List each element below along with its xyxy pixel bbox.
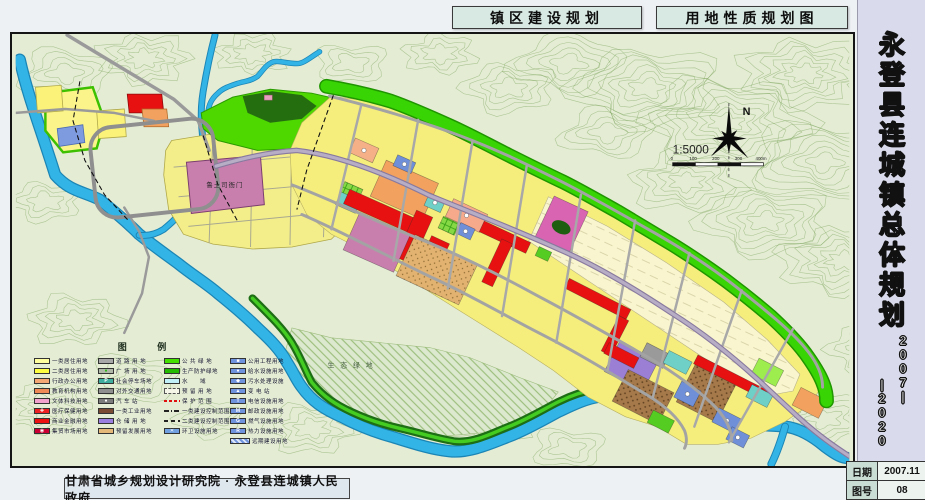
date-label: 日期	[847, 462, 878, 480]
legend-label: 预 留 用 地	[182, 387, 212, 395]
svg-text:300: 300	[735, 156, 743, 161]
legend-item: ●汽 车 站	[98, 396, 152, 406]
sidebar-title-char: 划	[858, 300, 925, 330]
svg-text:400m: 400m	[756, 156, 767, 161]
legend-swatch: ■	[230, 358, 246, 364]
legend-item: 预 留 用 地	[164, 386, 230, 396]
legend-label: 邮政设施用地	[248, 407, 284, 415]
legend-swatch	[34, 398, 50, 404]
date-value: 2007.11	[878, 462, 925, 480]
legend-swatch-icon: ◆	[231, 378, 245, 385]
legend-item: 预留发展用地	[98, 426, 152, 436]
legend-label: 污水处理设施	[248, 377, 284, 385]
legend-swatch: ▲	[230, 388, 246, 394]
sidebar-title-char: 体	[858, 240, 925, 270]
legend-label: 医疗保健用地	[52, 407, 88, 415]
legend-item: 行政办公用地	[34, 376, 88, 386]
legend-swatch-icon: ▲	[231, 388, 245, 395]
legend-swatch	[34, 388, 50, 394]
legend: 图 例 一类居住用地二类居住用地行政办公用地教育机构用地文体科技用地✚医疗保健用…	[32, 340, 294, 462]
legend-label: 电信设施用地	[248, 397, 284, 405]
legend-item: 商业金融用地	[34, 416, 88, 426]
legend-item: 一类建设控制范围	[164, 406, 230, 416]
legend-label: 道 路 用 地	[116, 357, 146, 365]
legend-column: 公 共 绿 地生产防护绿地水 域预 留 用 地保 护 范 围一类建设控制范围二类…	[164, 356, 230, 436]
sidebar-title: 永登县连城镇总体规划	[858, 30, 925, 330]
legend-title: 图 例	[32, 340, 252, 353]
sidebar-title-char: 城	[858, 150, 925, 180]
legend-label: 二类建设控制范围	[182, 417, 230, 425]
info-table: 日期 2007.11 图号 08	[846, 461, 925, 500]
legend-item: 保 护 范 围	[164, 396, 230, 406]
legend-swatch	[164, 388, 180, 394]
legend-label: 社会停车场地	[116, 377, 152, 385]
legend-label: 公用工程用地	[248, 357, 284, 365]
legend-swatch-icon: ◉	[35, 428, 49, 435]
legend-item: 一类工业用地	[98, 406, 152, 416]
sheet-title-left: 镇区建设规划	[452, 6, 642, 29]
legend-label: 生产防护绿地	[182, 367, 218, 375]
legend-swatch	[164, 400, 180, 402]
legend-label: 远期建设用地	[252, 437, 288, 445]
plan-sheet: 镇区建设规划 用地性质规划图	[0, 0, 925, 500]
legend-swatch: ●	[230, 368, 246, 374]
legend-item: R热力设施用地	[230, 426, 288, 436]
legend-item: ●广 场 用 地	[98, 366, 152, 376]
sidebar-title-char: 永	[858, 30, 925, 60]
sheet-value: 08	[878, 481, 925, 499]
legend-label: 保 护 范 围	[182, 397, 212, 405]
sidebar-year-char: 7	[894, 376, 912, 390]
year-end-column: |2020	[873, 378, 891, 448]
legend-item: 二类建设控制范围	[164, 416, 230, 426]
legend-swatch	[34, 368, 50, 374]
sidebar-year-char: 2	[894, 334, 912, 348]
legend-swatch	[34, 418, 50, 424]
eco-green-label: 生 态 绿 地	[328, 360, 375, 369]
legend-item: 道 路 用 地	[98, 356, 152, 366]
legend-swatch	[34, 358, 50, 364]
legend-column: 道 路 用 地●广 场 用 地P社会停车场地对外交通用地●汽 车 站一类工业用地…	[98, 356, 152, 436]
legend-swatch-icon: G	[231, 418, 245, 425]
legend-item: 对外交通用地	[98, 386, 152, 396]
legend-label: 汽 车 站	[116, 397, 138, 405]
legend-label: 广 场 用 地	[116, 367, 146, 375]
legend-label: 一类工业用地	[116, 407, 152, 415]
legend-item: ◆污水处理设施	[230, 376, 288, 386]
legend-item: 远期建设用地	[230, 436, 288, 446]
legend-item: 教育机构用地	[34, 386, 88, 396]
legend-item: ●给水设施用地	[230, 366, 288, 376]
legend-swatch-icon: ●	[99, 398, 113, 405]
legend-label: 教育机构用地	[52, 387, 88, 395]
legend-swatch: R	[230, 428, 246, 434]
legend-swatch	[164, 358, 180, 364]
legend-label: 一类建设控制范围	[182, 407, 230, 415]
sidebar-title-char: 县	[858, 90, 925, 120]
legend-swatch: P	[98, 378, 114, 384]
svg-text:100: 100	[689, 156, 697, 161]
heritage-label: 鲁土司衙门	[206, 180, 243, 189]
legend-swatch	[34, 378, 50, 384]
legend-item: G燃气设施用地	[230, 416, 288, 426]
year-start-column: 2007|	[894, 334, 912, 404]
legend-label: 文体科技用地	[52, 397, 88, 405]
legend-label: 水 域	[182, 377, 206, 385]
legend-label: 公 共 绿 地	[182, 357, 212, 365]
map-frame: 鲁土司衙门 生 态 绿 地 N 1:5000 0 100 200 300 400…	[10, 32, 855, 468]
legend-swatch	[98, 408, 114, 414]
legend-item: T电信设施用地	[230, 396, 288, 406]
legend-swatch: ✚	[34, 408, 50, 414]
sidebar-title-char: 镇	[858, 180, 925, 210]
scale-ratio: 1:5000	[673, 142, 710, 156]
sidebar-year-char: 2	[873, 420, 891, 434]
legend-swatch-icon: R	[231, 428, 245, 435]
legend-swatch-icon: M	[231, 408, 245, 415]
legend-label: 二类居住用地	[52, 367, 88, 375]
legend-swatch	[164, 368, 180, 374]
legend-label: 预留发展用地	[116, 427, 152, 435]
legend-swatch	[98, 358, 114, 364]
sidebar-year-char: |	[894, 390, 912, 404]
legend-label: 燃气设施用地	[248, 417, 284, 425]
legend-swatch	[164, 420, 180, 422]
legend-swatch: T	[230, 398, 246, 404]
legend-item: ■公用工程用地	[230, 356, 288, 366]
sidebar-year-char: |	[873, 378, 891, 392]
legend-swatch	[164, 410, 180, 412]
legend-swatch-icon: ●	[99, 368, 113, 375]
legend-swatch: ◉	[34, 428, 50, 434]
date-row: 日期 2007.11	[847, 462, 925, 481]
legend-item: ▲变 电 站	[230, 386, 288, 396]
legend-item: ✕环卫设施用地	[164, 426, 230, 436]
legend-label: 给水设施用地	[248, 367, 284, 375]
legend-item: 公 共 绿 地	[164, 356, 230, 366]
legend-swatch-icon: ■	[231, 358, 245, 365]
sidebar-title-char: 连	[858, 120, 925, 150]
legend-item: 水 域	[164, 376, 230, 386]
legend-item: ◉集贸市场用地	[34, 426, 88, 436]
sheet-row: 图号 08	[847, 481, 925, 499]
sidebar-year-char: 2	[873, 392, 891, 406]
legend-swatch: G	[230, 418, 246, 424]
legend-label: 一类居住用地	[52, 357, 88, 365]
legend-item: 二类居住用地	[34, 366, 88, 376]
legend-label: 环卫设施用地	[182, 427, 218, 435]
legend-swatch: ●	[98, 368, 114, 374]
legend-item: 一类居住用地	[34, 356, 88, 366]
legend-column: ■公用工程用地●给水设施用地◆污水处理设施▲变 电 站T电信设施用地M邮政设施用…	[230, 356, 288, 446]
legend-label: 行政办公用地	[52, 377, 88, 385]
legend-label: 变 电 站	[248, 387, 270, 395]
legend-column: 一类居住用地二类居住用地行政办公用地教育机构用地文体科技用地✚医疗保健用地商业金…	[34, 356, 88, 436]
north-label: N	[743, 106, 751, 118]
legend-swatch	[98, 388, 114, 394]
legend-item: 文体科技用地	[34, 396, 88, 406]
sidebar-year-char: 0	[873, 406, 891, 420]
legend-item: 生产防护绿地	[164, 366, 230, 376]
legend-swatch: ●	[98, 398, 114, 404]
legend-swatch	[164, 378, 180, 384]
legend-swatch	[230, 438, 250, 444]
legend-swatch-icon: T	[231, 398, 245, 405]
sidebar-year-char: 0	[894, 362, 912, 376]
sidebar-title-char: 总	[858, 210, 925, 240]
legend-item: M邮政设施用地	[230, 406, 288, 416]
sidebar-title-char: 登	[858, 60, 925, 90]
legend-swatch: ✕	[164, 428, 180, 434]
sheet-label: 图号	[847, 481, 878, 499]
legend-item: 仓 储 用 地	[98, 416, 152, 426]
sidebar-title-char: 规	[858, 270, 925, 300]
credit-box: 甘肃省城乡规划设计研究院 · 永登县连城镇人民政府	[64, 478, 350, 499]
legend-label: 集贸市场用地	[52, 427, 88, 435]
sidebar: 永登县连城镇总体规划 2007| |2020	[857, 0, 925, 500]
legend-item: P社会停车场地	[98, 376, 152, 386]
legend-swatch: M	[230, 408, 246, 414]
legend-swatch-icon: ✕	[165, 428, 179, 435]
sidebar-year-char: 0	[894, 348, 912, 362]
legend-swatch	[98, 428, 114, 434]
legend-swatch-icon: P	[99, 378, 113, 385]
legend-swatch	[98, 418, 114, 424]
legend-swatch-icon: ●	[231, 368, 245, 375]
svg-text:200: 200	[712, 156, 720, 161]
sheet-title-right: 用地性质规划图	[656, 6, 848, 29]
legend-item: ✚医疗保健用地	[34, 406, 88, 416]
legend-label: 热力设施用地	[248, 427, 284, 435]
legend-label: 商业金融用地	[52, 417, 88, 425]
legend-label: 对外交通用地	[116, 387, 152, 395]
legend-swatch: ◆	[230, 378, 246, 384]
legend-swatch-icon: ✚	[35, 408, 49, 415]
legend-label: 仓 储 用 地	[116, 417, 146, 425]
sidebar-year-char: 0	[873, 434, 891, 448]
